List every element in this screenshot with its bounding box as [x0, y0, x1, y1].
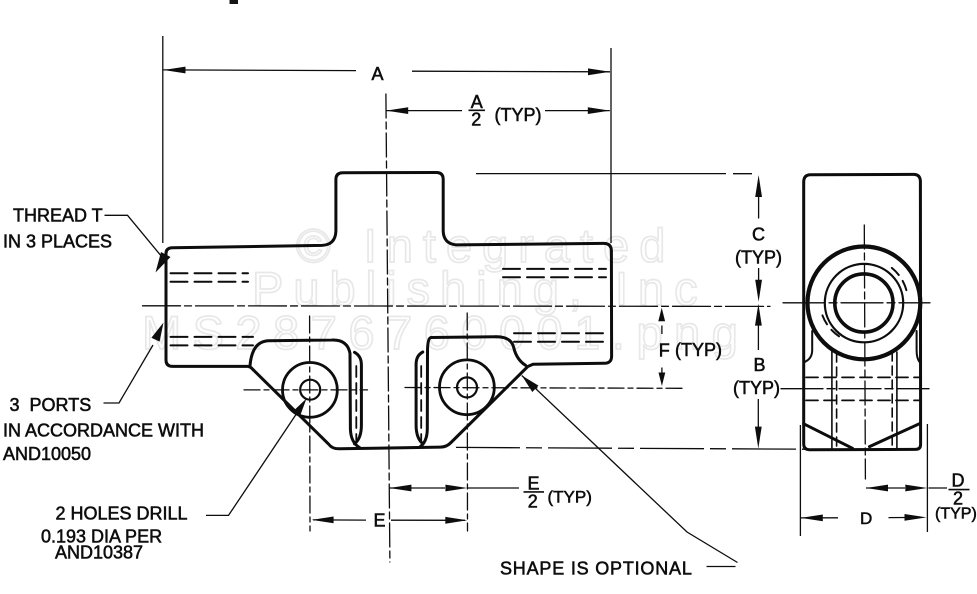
svg-text:IN ACCORDANCE WITH: IN ACCORDANCE WITH — [3, 421, 204, 441]
svg-text:C: C — [752, 225, 765, 245]
svg-text:2: 2 — [471, 110, 481, 130]
svg-text:THREAD T: THREAD T — [13, 206, 103, 226]
svg-text:F: F — [659, 341, 670, 361]
svg-text:(TYP): (TYP) — [733, 378, 780, 398]
svg-text:SHAPE IS OPTIONAL: SHAPE IS OPTIONAL — [500, 559, 693, 579]
svg-text:AND10050: AND10050 — [3, 444, 91, 464]
svg-text:2 HOLES DRILL: 2 HOLES DRILL — [56, 504, 188, 524]
svg-text:(TYP): (TYP) — [495, 105, 542, 125]
svg-text:B: B — [754, 355, 766, 375]
svg-text:E: E — [374, 511, 386, 531]
svg-text:3 PORTS: 3 PORTS — [10, 395, 92, 415]
svg-text:(TYP): (TYP) — [548, 488, 592, 507]
svg-text:D: D — [860, 509, 872, 528]
svg-text:IN 3 PLACES: IN 3 PLACES — [3, 232, 112, 252]
svg-text:(TYP): (TYP) — [675, 340, 722, 360]
svg-text:(TYP): (TYP) — [935, 506, 977, 523]
svg-text:2: 2 — [528, 492, 538, 512]
svg-text:A: A — [372, 64, 384, 84]
svg-text:E: E — [528, 474, 540, 494]
svg-text:(TYP): (TYP) — [735, 248, 782, 268]
svg-text:AND10387: AND10387 — [55, 543, 143, 563]
